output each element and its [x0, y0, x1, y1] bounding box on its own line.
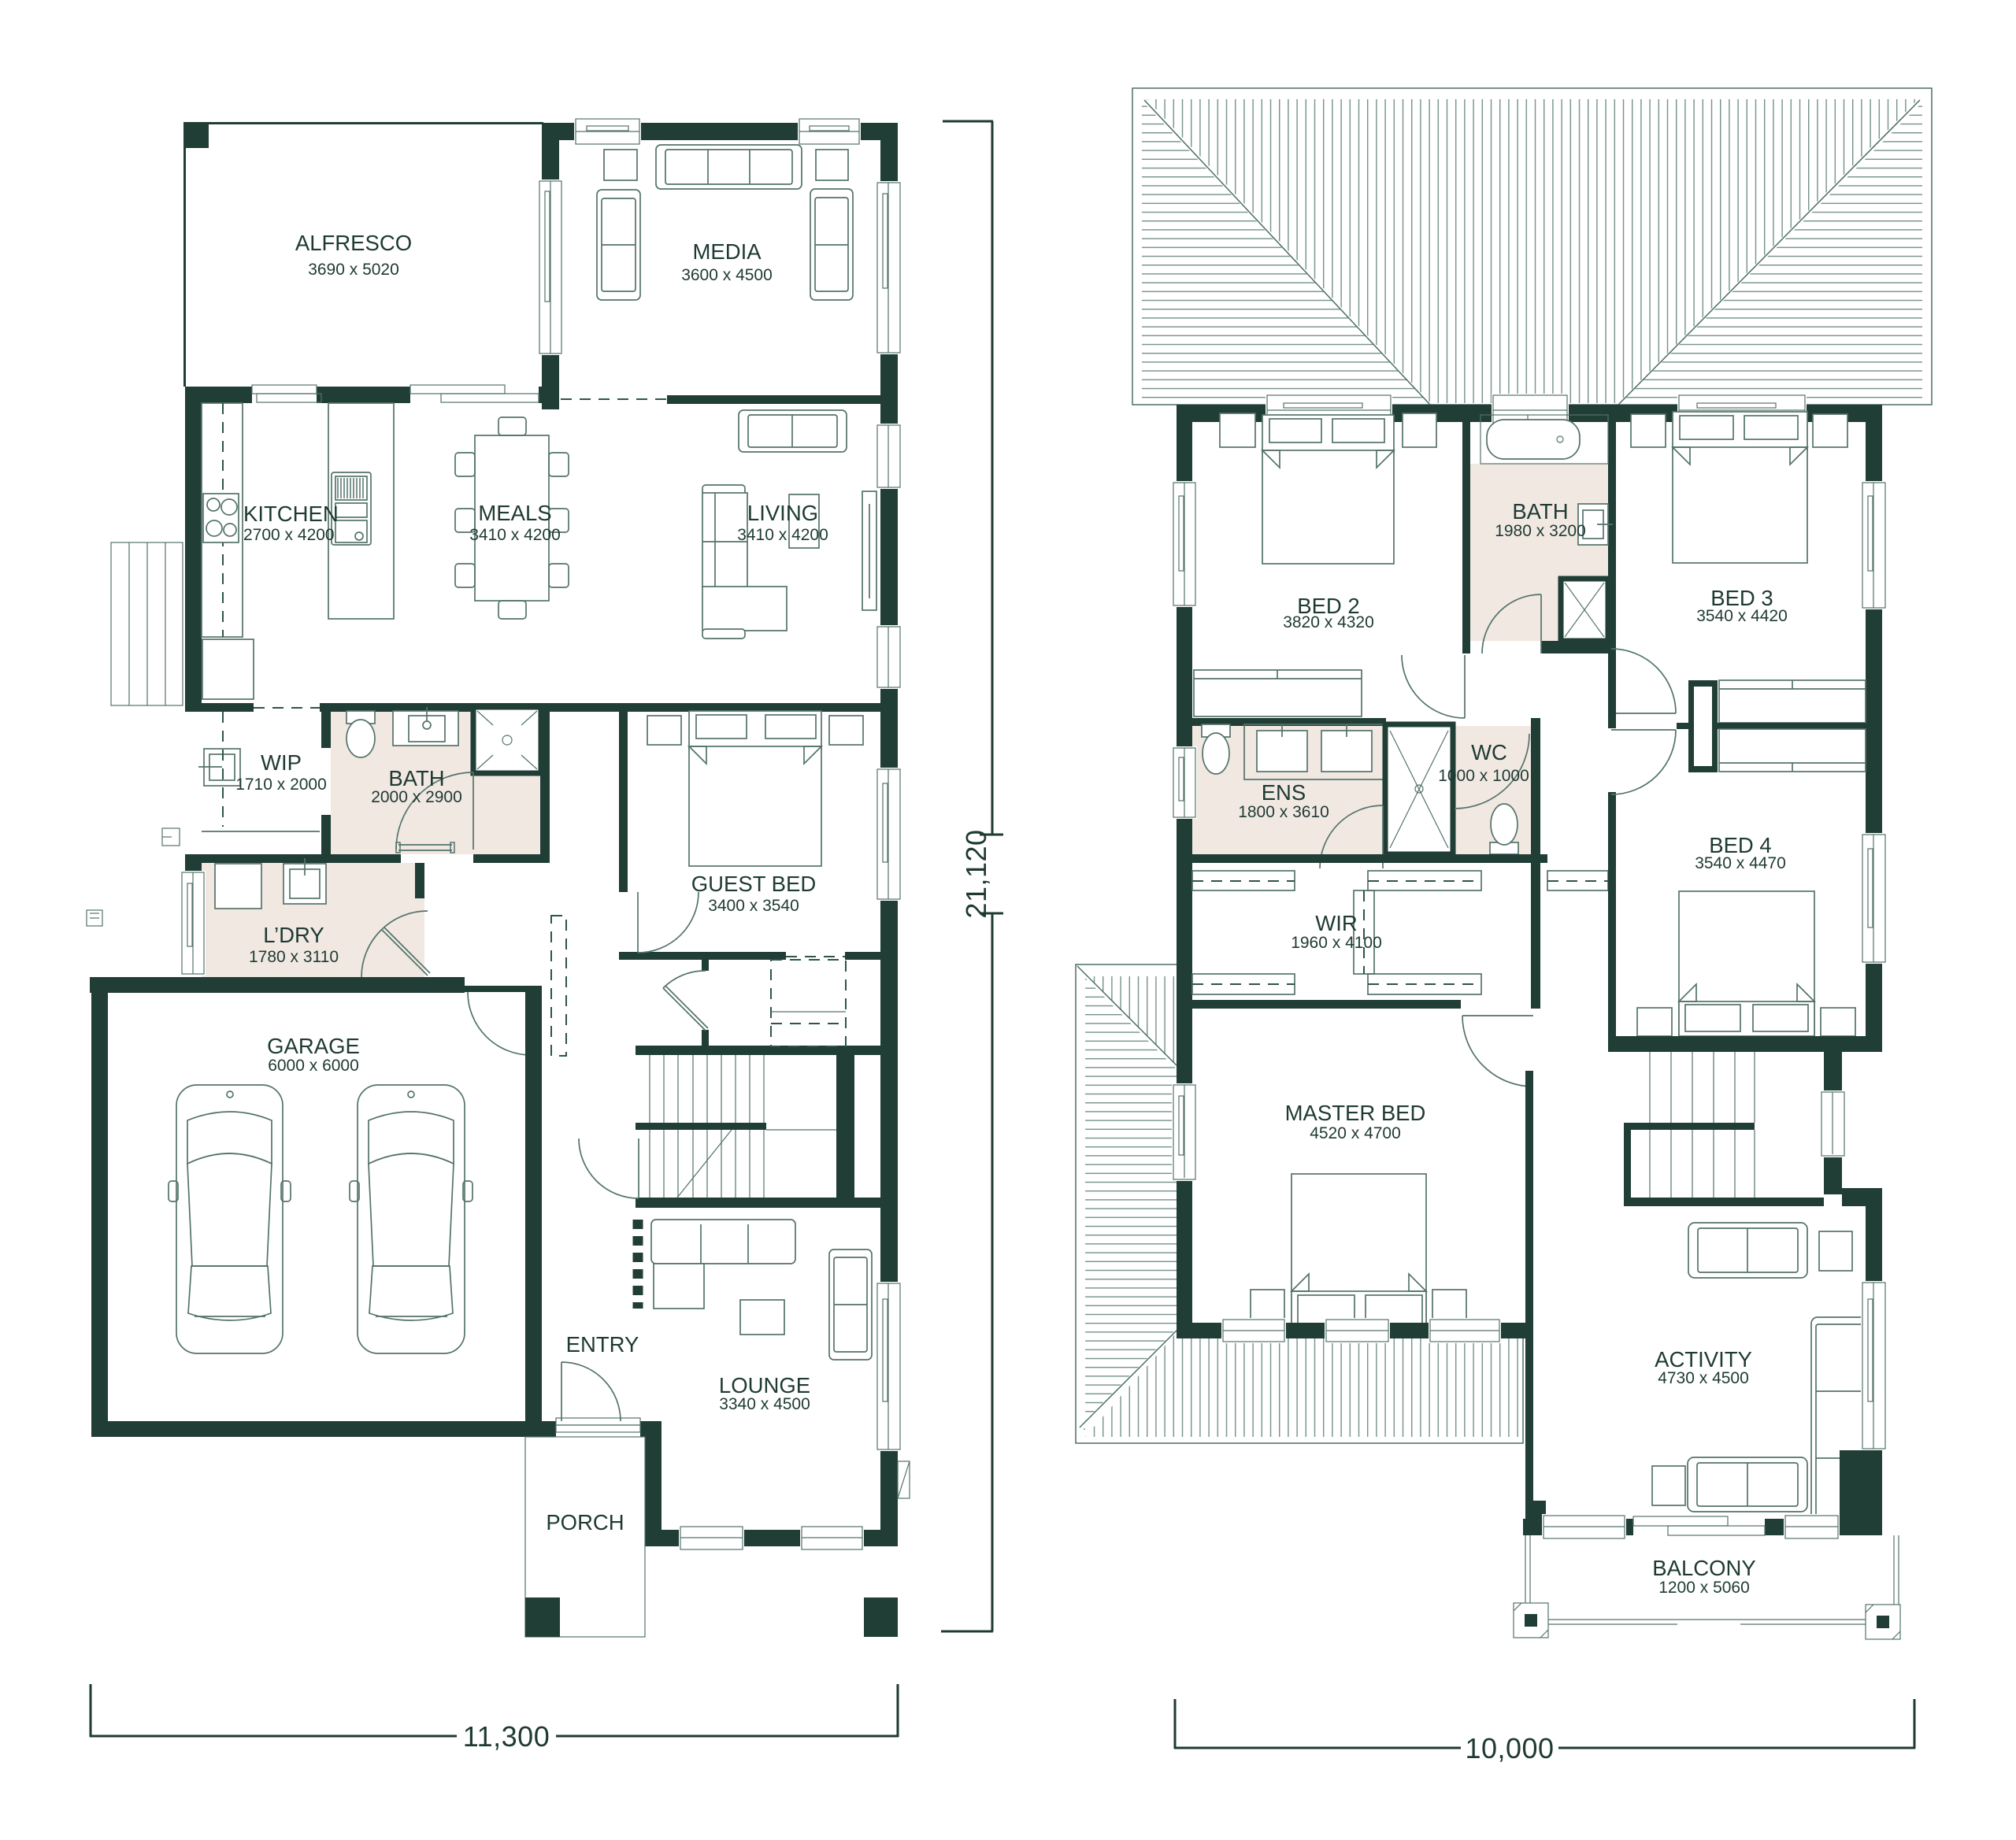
- svg-text:LOUNGE: LOUNGE: [719, 1373, 810, 1398]
- svg-text:BALCONY: BALCONY: [1652, 1556, 1755, 1580]
- svg-text:WIR: WIR: [1315, 911, 1357, 935]
- svg-text:ENS: ENS: [1262, 780, 1306, 805]
- svg-text:3820 x 4320: 3820 x 4320: [1283, 613, 1374, 631]
- svg-text:2000 x 2900: 2000 x 2900: [371, 788, 462, 806]
- svg-text:11,300: 11,300: [463, 1720, 550, 1753]
- svg-text:ACTIVITY: ACTIVITY: [1655, 1347, 1752, 1372]
- svg-text:3600 x 4500: 3600 x 4500: [681, 266, 773, 284]
- svg-text:3690 x 5020: 3690 x 5020: [308, 261, 399, 279]
- svg-text:1780 x 3110: 1780 x 3110: [249, 948, 339, 966]
- svg-text:BATH: BATH: [1512, 499, 1568, 524]
- svg-text:4520 x 4700: 4520 x 4700: [1310, 1124, 1401, 1142]
- svg-text:3540 x 4470: 3540 x 4470: [1695, 854, 1786, 872]
- svg-text:GUEST BED: GUEST BED: [691, 872, 816, 896]
- svg-text:BATH: BATH: [388, 766, 444, 790]
- svg-text:3410 x 4200: 3410 x 4200: [469, 526, 561, 544]
- svg-text:1200 x 5060: 1200 x 5060: [1658, 1579, 1750, 1597]
- svg-text:ALFRESCO: ALFRESCO: [295, 231, 412, 255]
- svg-text:2700 x 4200: 2700 x 4200: [243, 526, 335, 544]
- svg-text:1800 x 3610: 1800 x 3610: [1238, 803, 1329, 821]
- svg-text:MEALS: MEALS: [478, 501, 551, 525]
- svg-text:3340 x 4500: 3340 x 4500: [719, 1395, 810, 1413]
- svg-text:GARAGE: GARAGE: [267, 1034, 360, 1058]
- svg-text:ENTRY: ENTRY: [566, 1332, 639, 1357]
- svg-text:KITCHEN: KITCHEN: [243, 502, 339, 526]
- svg-text:PORCH: PORCH: [546, 1510, 624, 1535]
- svg-text:3540 x 4420: 3540 x 4420: [1696, 607, 1788, 625]
- svg-text:1000 x 1000: 1000 x 1000: [1438, 767, 1529, 785]
- svg-text:L’DRY: L’DRY: [263, 923, 324, 947]
- svg-text:WC: WC: [1471, 740, 1507, 765]
- svg-text:1710 x 2000: 1710 x 2000: [235, 776, 327, 794]
- svg-text:3400 x 3540: 3400 x 3540: [708, 897, 799, 915]
- svg-text:6000 x 6000: 6000 x 6000: [268, 1057, 359, 1075]
- svg-text:21,120: 21,120: [960, 829, 992, 918]
- svg-text:4730 x 4500: 4730 x 4500: [1658, 1369, 1749, 1387]
- svg-text:LIVING: LIVING: [747, 501, 818, 525]
- svg-text:1960 x 4100: 1960 x 4100: [1291, 934, 1382, 952]
- svg-text:WIP: WIP: [261, 750, 302, 775]
- svg-text:10,000: 10,000: [1465, 1732, 1554, 1764]
- svg-text:1980 x 3200: 1980 x 3200: [1495, 522, 1586, 540]
- svg-text:3410 x 4200: 3410 x 4200: [737, 526, 828, 544]
- svg-text:MEDIA: MEDIA: [692, 239, 762, 264]
- svg-text:MASTER BED: MASTER BED: [1285, 1101, 1426, 1125]
